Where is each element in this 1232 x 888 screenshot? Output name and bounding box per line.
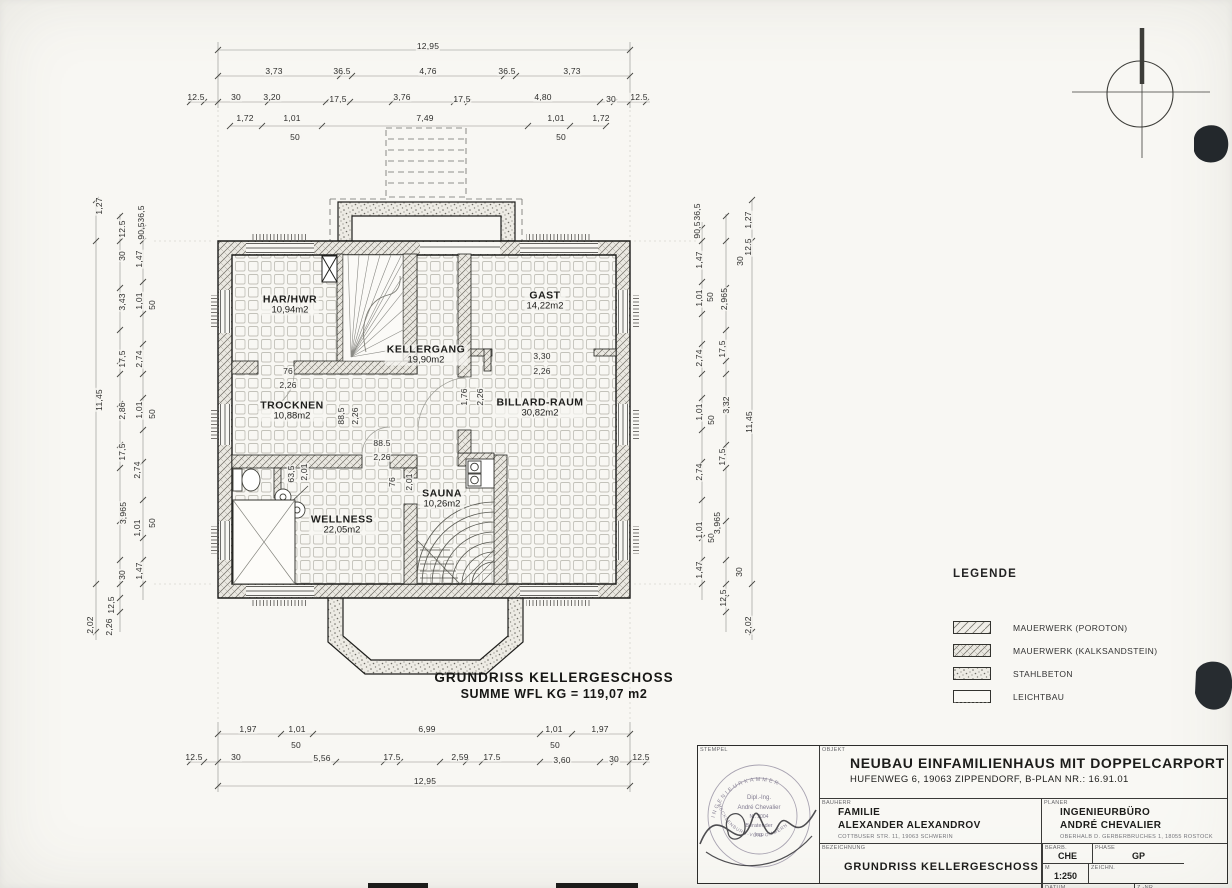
legend-item-kalksandstein: MAUERWERK (KALKSANDSTEIN) xyxy=(953,639,1183,662)
plan-caption: GRUNDRISS KELLERGESCHOSS SUMME WFL KG = … xyxy=(424,670,684,701)
dim-label: 1,47 xyxy=(135,561,144,580)
dim-label: 2,26 xyxy=(476,387,485,406)
dim-label: 3,32 xyxy=(722,395,731,414)
plain-swatch-icon xyxy=(953,690,991,703)
legend-item-leichtbau: LEICHTBAU xyxy=(953,685,1183,708)
dashed-overlay-outline xyxy=(330,128,522,241)
legend: LEGENDE MAUERWERK (POROTON) MAUERWERK (K… xyxy=(953,568,1183,708)
dim-label: 50 xyxy=(706,291,715,303)
dim-label: 2,59 xyxy=(450,753,469,762)
room-label: BILLARD-RAUM30,82m2 xyxy=(494,398,585,419)
cross-hatch-swatch-icon xyxy=(953,644,991,657)
dim-label: 50 xyxy=(707,414,716,426)
dim-label: 90,5 xyxy=(693,220,702,239)
dim-label: 6,99 xyxy=(417,725,436,734)
room-label: KELLERGANG19,90m2 xyxy=(385,345,468,366)
dim-label: 63,5 xyxy=(287,464,296,483)
dim-label: 12.5 xyxy=(629,93,648,102)
svg-text:Ing.: Ing. xyxy=(754,832,764,838)
dim-label: 4,76 xyxy=(418,67,437,76)
dim-label: 17,5 xyxy=(118,349,127,368)
dim-label: 30 xyxy=(230,753,242,762)
dim-label: 3,76 xyxy=(392,93,411,102)
dim-label: 30 xyxy=(735,566,744,578)
drawing-title: GRUNDRISS KELLERGESCHOSS xyxy=(844,861,1041,873)
dim-label: 17.5 xyxy=(382,753,401,762)
dim-label: 2,01 xyxy=(300,462,309,481)
shower xyxy=(233,500,295,584)
chimney xyxy=(322,256,337,282)
dim-label: 17,5 xyxy=(718,339,727,358)
room-label: HAR/HWR10,94m2 xyxy=(261,295,319,316)
dim-label: 50 xyxy=(289,133,301,142)
dim-label: 1,01 xyxy=(287,725,306,734)
dim-label: 50 xyxy=(148,408,157,420)
dim-label: 50 xyxy=(555,133,567,142)
drawing-title-cell: BEZEICHNUNG GRUNDRISS KELLERGESCHOSS xyxy=(820,844,1042,888)
dim-label: 3,73 xyxy=(562,67,581,76)
dim-label: 1,01 xyxy=(135,400,144,419)
planner-name-1: INGENIEURBÜRO xyxy=(1060,807,1227,820)
dim-label: 50 xyxy=(290,741,302,750)
dim-label: 2,74 xyxy=(695,348,704,367)
dim-label: 17,5 xyxy=(118,442,127,461)
dim-label: 50 xyxy=(148,517,157,529)
dim-label: 1,01 xyxy=(695,520,704,539)
dim-label: 36.5 xyxy=(332,67,351,76)
project-cell: OBJEKT NEUBAU EINFAMILIENHAUS MIT DOPPEL… xyxy=(820,746,1227,799)
dim-label: 36.5 xyxy=(497,67,516,76)
dim-label: 12.5 xyxy=(186,93,205,102)
planer-label: PLANER xyxy=(1044,800,1068,806)
dim-label: 17.5 xyxy=(482,753,501,762)
stipple-swatch-icon xyxy=(953,667,991,680)
room-area: 10,88m2 xyxy=(258,412,326,422)
room-area: 14,22m2 xyxy=(525,302,566,312)
phase-cell: PHASEGP xyxy=(1092,844,1184,864)
dim-label: 2,86 xyxy=(118,401,127,420)
engineer-stamp: INGENIEURKAMMER MECKLENBURG-VORPOMMERN D… xyxy=(698,746,819,882)
sauna-stove xyxy=(466,459,494,488)
bezeichnung-label: BEZEICHNUNG xyxy=(822,845,865,851)
scan-artifact-right xyxy=(556,883,638,888)
caption-title: GRUNDRISS KELLERGESCHOSS xyxy=(424,670,684,685)
dim-label: 1,72 xyxy=(235,114,254,123)
stamp-cell: STEMPEL INGENIEURKAMMER MECKLENBURG-VORP… xyxy=(698,746,820,883)
dim-label: 1,27 xyxy=(744,210,753,229)
planner-cell: PLANER INGENIEURBÜRO ANDRÉ CHEVALIER OBE… xyxy=(1042,799,1227,843)
dim-label: 3,30 xyxy=(532,352,551,361)
dim-label: 3,73 xyxy=(264,67,283,76)
dim-label: 2,26 xyxy=(105,617,114,636)
planner-name-2: ANDRÉ CHEVALIER xyxy=(1060,820,1227,833)
dim-label: 12.5 xyxy=(744,237,753,256)
dim-label: 12,95 xyxy=(413,777,437,786)
dim-label: 11,45 xyxy=(95,388,104,412)
dim-label: 17,5 xyxy=(452,95,471,104)
dim-label: 3,43 xyxy=(118,292,127,311)
dim-label: 50 xyxy=(549,741,561,750)
phase-value: GP xyxy=(1132,851,1145,861)
dim-label: 1,01 xyxy=(544,725,563,734)
dim-label: 1,01 xyxy=(133,518,142,537)
ink-blob-top xyxy=(1194,125,1228,162)
dim-label: 12.5 xyxy=(118,219,127,238)
client-cell: BAUHERR FAMILIE ALEXANDER ALEXANDROV COT… xyxy=(820,799,1042,843)
stempel-label: STEMPEL xyxy=(700,747,728,753)
dim-label: 30 xyxy=(230,93,242,102)
entry-porch-walls xyxy=(338,202,515,241)
dim-label: 2,26 xyxy=(351,406,360,425)
dim-label: 2,965 xyxy=(720,287,729,311)
objekt-label: OBJEKT xyxy=(822,747,845,753)
dim-label: 30 xyxy=(608,755,620,764)
room-area: 10,26m2 xyxy=(420,500,464,510)
room-area: 30,82m2 xyxy=(494,409,585,419)
dim-label: 88.5 xyxy=(372,439,391,448)
dim-label: 12,95 xyxy=(416,42,440,51)
dim-label: 30 xyxy=(118,569,127,581)
legend-item-poroton: MAUERWERK (POROTON) xyxy=(953,616,1183,639)
dim-label: 2,74 xyxy=(135,349,144,368)
dim-label: 2,74 xyxy=(695,462,704,481)
dim-label: 1,01 xyxy=(282,114,301,123)
dim-label: 2,74 xyxy=(133,460,142,479)
dim-label: 76 xyxy=(282,367,294,376)
dim-label: 1,47 xyxy=(135,249,144,268)
dim-label: 12,5 xyxy=(719,588,728,607)
dim-label: 36,5 xyxy=(693,202,702,221)
client-address: COTTBUSER STR. 11, 19063 SCHWERIN xyxy=(838,834,1041,840)
dim-label: 76 xyxy=(388,476,397,488)
terrace-bay-walls xyxy=(328,597,523,674)
dim-label: 12.5 xyxy=(631,753,650,762)
bauherr-label: BAUHERR xyxy=(822,800,851,806)
dim-label: 2,02 xyxy=(744,615,753,634)
dim-label: 1,47 xyxy=(695,250,704,269)
client-name-1: FAMILIE xyxy=(838,807,1041,820)
bearb-value: CHE xyxy=(1058,851,1077,861)
title-block: STEMPEL INGENIEURKAMMER MECKLENBURG-VORP… xyxy=(697,745,1228,884)
dim-label: 2,02 xyxy=(86,615,95,634)
dim-label: 1,01 xyxy=(135,291,144,310)
room-area: 10,94m2 xyxy=(261,306,319,316)
scale-cell: M1:250 xyxy=(1042,864,1088,884)
dim-label: 88,5 xyxy=(337,406,346,425)
dim-label: 1,01 xyxy=(546,114,565,123)
dim-label: 3,60 xyxy=(552,756,571,765)
dim-label: 1,01 xyxy=(695,402,704,421)
dim-label: 1,97 xyxy=(238,725,257,734)
registration-crosshair xyxy=(1072,28,1210,158)
dim-label: 1,27 xyxy=(95,196,104,215)
dim-label: 30 xyxy=(118,250,127,262)
dim-label: 30 xyxy=(736,255,745,267)
zeichn-cell: ZEICHN. xyxy=(1088,864,1138,884)
svg-text:Dipl.-Ing.: Dipl.-Ing. xyxy=(747,795,771,801)
dim-label: 2,26 xyxy=(278,381,297,390)
scale-value: 1:250 xyxy=(1054,871,1077,881)
dim-label: 30 xyxy=(605,95,617,104)
dim-label: 50 xyxy=(148,299,157,311)
wc-toilet xyxy=(233,469,260,491)
scanned-floorplan-sheet: 12,953,7336.54,7636.53,7312.5303,2017,53… xyxy=(0,0,1232,888)
dim-label: 17,5 xyxy=(328,95,347,104)
dim-label: 1,47 xyxy=(695,560,704,579)
legend-item-stahlbeton: STAHLBETON xyxy=(953,662,1183,685)
dim-label: 3,965 xyxy=(713,511,722,535)
date-cell: DATUM18.06.2007 xyxy=(1042,884,1134,888)
dim-label: 1,72 xyxy=(591,114,610,123)
room-label: WELLNESS22,05m2 xyxy=(309,515,375,536)
project-title: NEUBAU EINFAMILIENHAUS MIT DOPPELCARPORT xyxy=(850,755,1227,771)
dim-label: 90,5 xyxy=(137,221,146,240)
room-area: 22,05m2 xyxy=(309,526,375,536)
legend-title: LEGENDE xyxy=(953,568,1183,580)
svg-text:André Chevalier: André Chevalier xyxy=(737,805,780,811)
dim-label: 1,76 xyxy=(460,387,469,406)
diagonal-hatch-swatch-icon xyxy=(953,621,991,634)
dim-label: 5,56 xyxy=(312,754,331,763)
dim-label: 2,26 xyxy=(532,367,551,376)
caption-area-sum: SUMME WFL KG = 119,07 m2 xyxy=(424,687,684,701)
ink-blob-bottom xyxy=(1195,662,1232,710)
dim-label: 2,26 xyxy=(372,453,391,462)
dim-label: 4,80 xyxy=(533,93,552,102)
dim-label: 2,01 xyxy=(405,472,414,491)
sheet-number-cell: Z.-NR.A1.1 xyxy=(1134,884,1180,888)
client-name-2: ALEXANDER ALEXANDROV xyxy=(838,820,1041,833)
revision-grid: BEARB.CHE PHASEGP M1:250 ZEICHN. DATUM18… xyxy=(1042,844,1227,888)
dim-label: 7,49 xyxy=(415,114,434,123)
scan-artifact-left xyxy=(368,883,428,888)
dim-label: 11,45 xyxy=(745,410,754,434)
dim-label: 3,20 xyxy=(262,93,281,102)
room-label: SAUNA10,26m2 xyxy=(420,489,464,510)
dim-label: 12,5 xyxy=(107,595,116,614)
project-address: HUFENWEG 6, 19063 ZIPPENDORF, B-PLAN NR.… xyxy=(850,774,1227,785)
dim-label: 12.5 xyxy=(184,753,203,762)
room-area: 19,90m2 xyxy=(385,356,468,366)
room-label: GAST14,22m2 xyxy=(525,291,566,312)
dim-label: 1,97 xyxy=(590,725,609,734)
dim-label: 1,01 xyxy=(695,288,704,307)
dim-label: 17,5 xyxy=(718,447,727,466)
dim-label: 3,965 xyxy=(119,501,128,525)
planner-address: OBERHALB D. GERBERBRUCHES 1, 18055 ROSTO… xyxy=(1060,834,1227,840)
bearb-cell: BEARB.CHE xyxy=(1042,844,1092,864)
room-label: TROCKNEN10,88m2 xyxy=(258,401,326,422)
